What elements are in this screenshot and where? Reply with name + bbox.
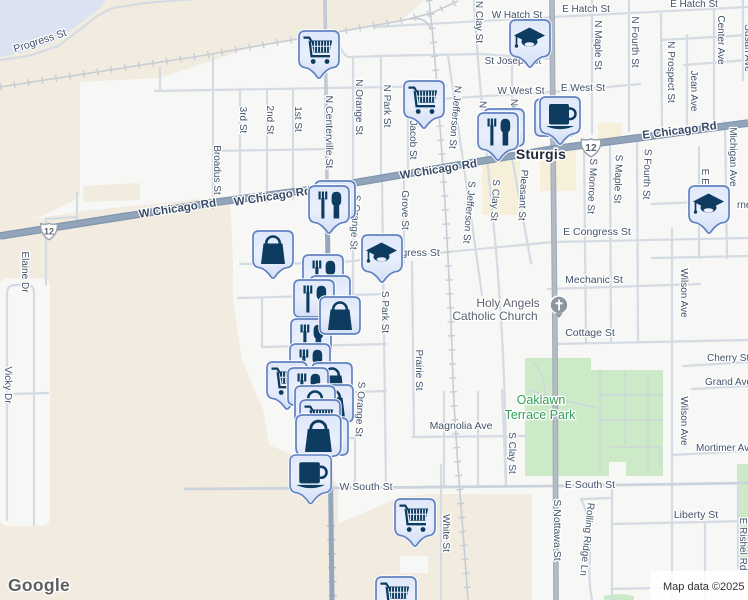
svg-text:Oaklawn: Oaklawn	[517, 393, 566, 407]
svg-text:Terrace Park: Terrace Park	[505, 408, 577, 422]
svg-text:Elaine Dr: Elaine Dr	[19, 251, 30, 293]
svg-text:Wilson Ave: Wilson Ave	[678, 396, 689, 446]
svg-text:E Congress St: E Congress St	[563, 226, 631, 238]
svg-text:N Centerville St: N Centerville St	[323, 96, 335, 169]
svg-text:Mechanic St: Mechanic St	[565, 274, 623, 286]
svg-text:W West St: W West St	[497, 86, 544, 97]
svg-text:Cherry St: Cherry St	[707, 353, 748, 364]
svg-text:S Clay St: S Clay St	[488, 179, 501, 221]
svg-text:Vicky Dr: Vicky Dr	[2, 366, 13, 404]
svg-text:E Hatch St: E Hatch St	[562, 4, 610, 15]
svg-text:E South St: E South St	[565, 479, 615, 491]
svg-text:2nd St: 2nd St	[264, 106, 275, 135]
svg-text:12: 12	[44, 226, 54, 236]
svg-text:Magnolia Ave: Magnolia Ave	[430, 420, 493, 432]
svg-text:Grand Ave: Grand Ave	[705, 377, 748, 388]
svg-text:Susan Ave: Susan Ave	[742, 24, 748, 72]
svg-text:E Hatch St: E Hatch St	[670, 0, 718, 10]
svg-text:Wilson Ave: Wilson Ave	[678, 268, 689, 318]
svg-text:Google: Google	[8, 575, 70, 595]
svg-text:Holy Angels: Holy Angels	[476, 296, 539, 310]
svg-text:Michigan Ave: Michigan Ave	[727, 127, 738, 187]
svg-text:S Clay St: S Clay St	[506, 432, 517, 474]
svg-text:N Fourth St: N Fourth St	[629, 16, 640, 67]
svg-text:White St: White St	[440, 514, 451, 552]
svg-text:N Clay St: N Clay St	[473, 1, 484, 43]
svg-text:N Maple St: N Maple St	[592, 20, 603, 70]
svg-text:1st St: 1st St	[292, 106, 303, 132]
svg-text:Jean Ave: Jean Ave	[688, 71, 699, 112]
svg-text:rnelia: rnelia	[737, 200, 748, 211]
svg-text:E West St: E West St	[561, 83, 605, 94]
svg-text:Sturgis: Sturgis	[516, 146, 566, 162]
svg-text:Map data ©2025: Map data ©2025	[663, 581, 745, 593]
svg-text:N Orange St: N Orange St	[353, 79, 364, 135]
svg-text:E Rishel Rd: E Rishel Rd	[737, 518, 748, 571]
svg-text:Center Ave: Center Ave	[715, 15, 726, 65]
svg-text:12: 12	[585, 143, 597, 154]
svg-text:N Prospect St: N Prospect St	[665, 41, 676, 103]
svg-text:S Park St: S Park St	[379, 291, 390, 333]
svg-text:Cottage St: Cottage St	[565, 327, 615, 339]
svg-text:N Park St: N Park St	[381, 85, 392, 128]
svg-text:Broadus St: Broadus St	[211, 145, 222, 195]
svg-text:Prairie St: Prairie St	[413, 349, 424, 390]
svg-text:Liberty St: Liberty St	[674, 509, 718, 521]
svg-text:Mortimer Av: Mortimer Av	[696, 443, 748, 454]
svg-text:Jacob St: Jacob St	[407, 121, 418, 160]
svg-text:S Fourth St: S Fourth St	[640, 149, 653, 200]
svg-text:S Nottawa St: S Nottawa St	[551, 499, 563, 560]
svg-text:Grove St: Grove St	[399, 190, 410, 230]
svg-text:Catholic Church: Catholic Church	[452, 309, 537, 323]
svg-text:S Maple St: S Maple St	[611, 154, 624, 203]
svg-text:3rd St: 3rd St	[237, 107, 248, 134]
svg-text:W South St: W South St	[339, 481, 392, 493]
